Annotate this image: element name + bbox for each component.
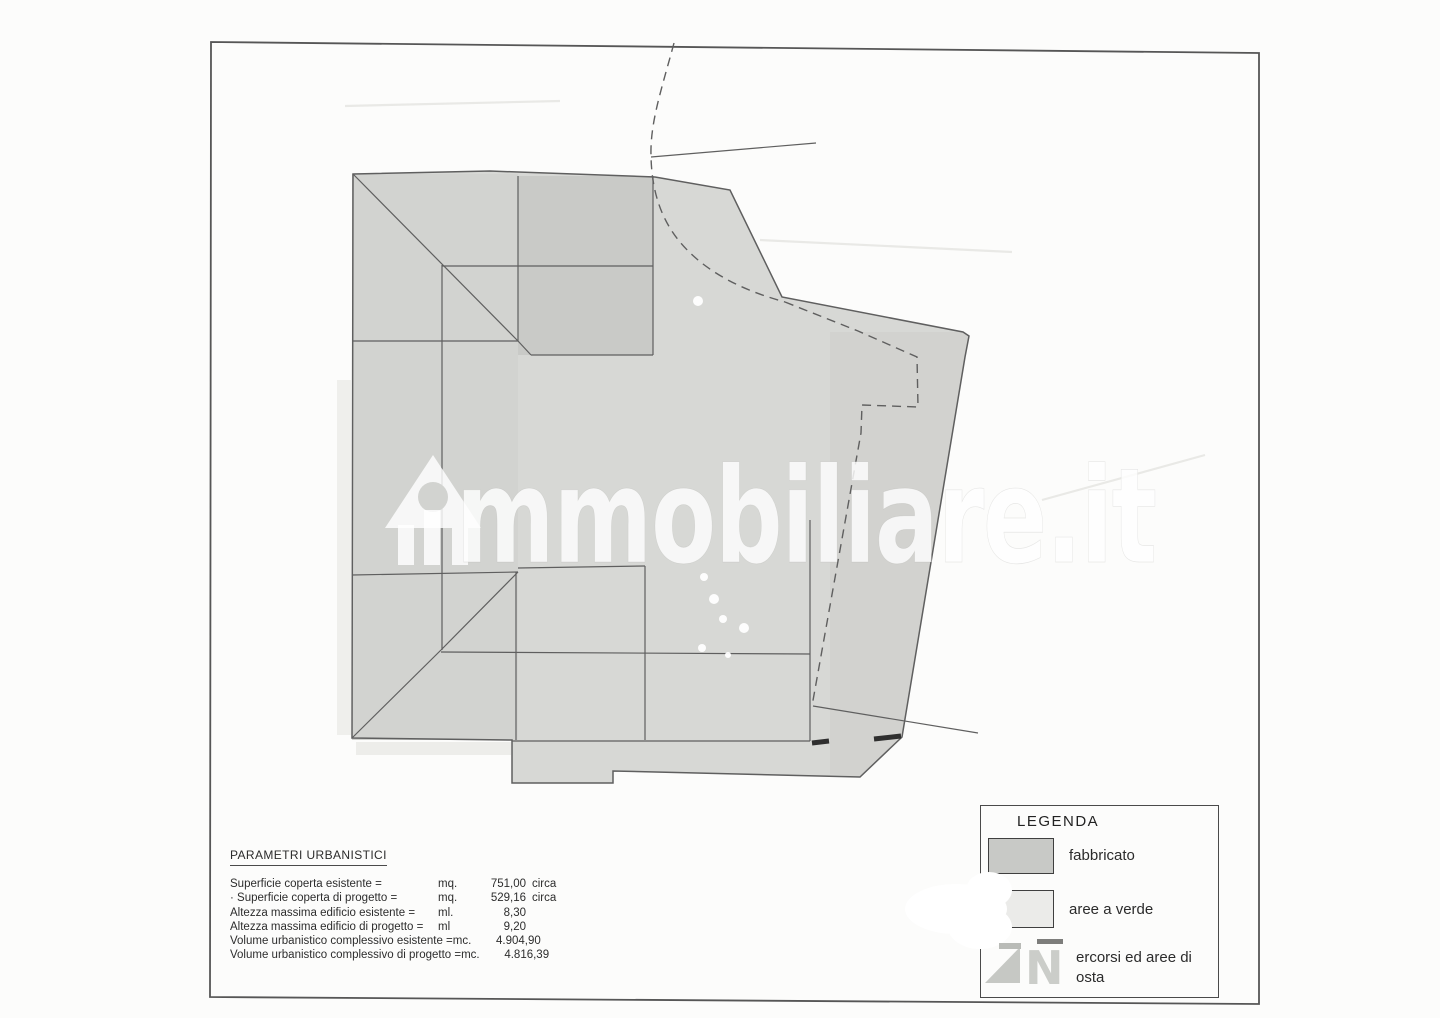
parameter-value: 9,20 (472, 920, 526, 934)
parameter-row: Altezza massima edificio esistente = ml.… (230, 906, 556, 920)
parameter-unit: ml. (438, 906, 472, 920)
legend-item-aree-a-verde: aree a verde (1069, 901, 1153, 918)
parameter-row: Superficie coperta esistente = mq. 751,0… (230, 877, 556, 891)
urban-parameters-block: PARAMETRI URBANISTICI Superficie coperta… (230, 848, 556, 962)
svg-text:N: N (1025, 941, 1064, 991)
parameter-label: Altezza massima edificio esistente = (230, 906, 438, 920)
parameter-label: Volume urbanistico complessivo di proget… (230, 948, 461, 962)
parameter-value: 8,30 (472, 906, 526, 920)
watermark-text: mmobiliare.it (456, 440, 1156, 594)
watermark: mmobiliare.it (385, 440, 1156, 594)
parameter-unit: mq. (438, 877, 472, 891)
parameter-value: 4.816,39 (495, 948, 549, 962)
legend-item-percorsi-line1: ercorsi ed aree di (1076, 949, 1192, 966)
watermark-blob (966, 872, 1012, 908)
parameter-suffix: circa (532, 877, 556, 891)
parameter-unit: mc. (461, 948, 495, 962)
parameter-label: Altezza massima edificio di progetto = (230, 920, 438, 934)
parameter-row: Altezza massima edificio di progetto = m… (230, 920, 556, 934)
parameter-row: Volume urbanistico complessivo di proget… (230, 948, 556, 962)
parameter-label: Superficie coperta esistente = (230, 877, 438, 891)
scanned-site-plan-page: mmobiliare.it PARAMETRI URBANISTICI Supe… (0, 0, 1440, 1018)
legend-title: LEGENDA (1017, 813, 1099, 830)
parameter-value: 751,00 (472, 877, 526, 891)
parameter-suffix: circa (532, 891, 556, 905)
parameter-row: Volume urbanistico complessivo esistente… (230, 934, 556, 948)
parameter-row: · Superficie coperta di progetto = mq. 5… (230, 891, 556, 905)
urban-parameters-title: PARAMETRI URBANISTICI (230, 848, 387, 866)
parameter-value: 4.904,90 (487, 934, 541, 948)
site-plan-drawing: mmobiliare.it (0, 0, 1440, 1018)
parameter-unit: ml (438, 920, 472, 934)
parameter-label: Volume urbanistico complessivo esistente… (230, 934, 453, 948)
fabbricato-swatch (988, 838, 1054, 874)
percorsi-swatch-remnants: N (975, 933, 1075, 991)
legend-item-fabbricato: fabbricato (1069, 847, 1135, 864)
parameter-label: · Superficie coperta di progetto = (230, 891, 438, 905)
parameter-value: 529,16 (472, 891, 526, 905)
parameter-unit: mc. (453, 934, 487, 948)
legend-item-percorsi-line2: osta (1076, 969, 1104, 986)
parameter-unit: mq. (438, 891, 472, 905)
